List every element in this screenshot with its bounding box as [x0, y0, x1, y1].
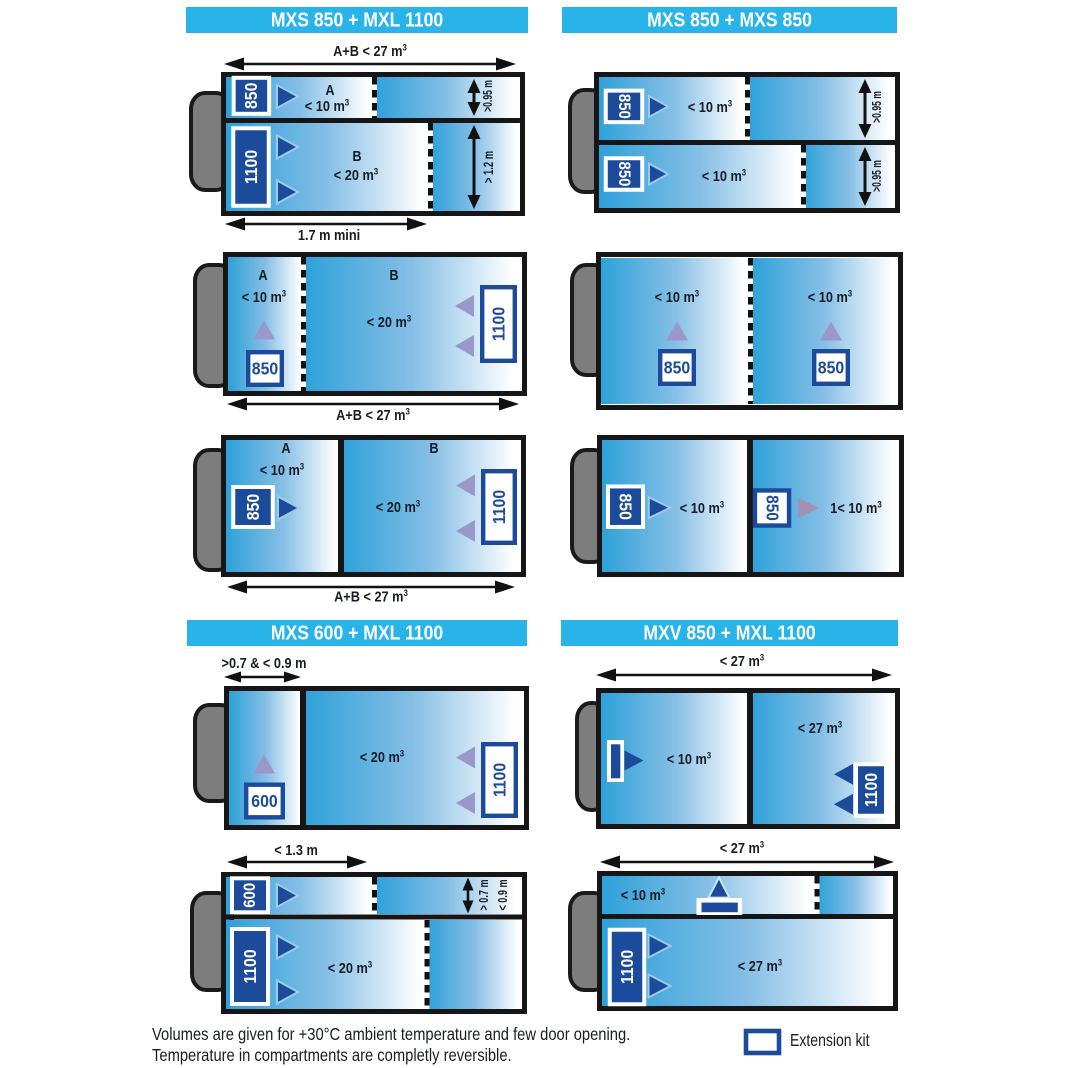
svg-text:A: A: [281, 439, 290, 456]
svg-text:< 27 m3: < 27 m3: [798, 719, 843, 737]
svg-text:1100: 1100: [617, 950, 637, 984]
svg-text:850: 850: [615, 162, 633, 187]
svg-text:850: 850: [762, 495, 781, 521]
svg-text:A: A: [258, 266, 267, 283]
svg-text:MXV 850 + MXL 1100: MXV 850 + MXL 1100: [643, 621, 815, 643]
svg-text:< 10 m3: < 10 m3: [655, 288, 700, 306]
svg-text:< 10 m3: < 10 m3: [260, 461, 305, 479]
svg-text:850: 850: [243, 494, 263, 520]
svg-text:< 10 m3: < 10 m3: [680, 499, 725, 517]
svg-text:1100: 1100: [488, 307, 508, 341]
svg-text:< 20 m3: < 20 m3: [360, 748, 405, 766]
svg-text:A+B < 27 m3: A+B < 27 m3: [336, 406, 410, 424]
svg-text:MXS 600 + MXL 1100: MXS 600 + MXL 1100: [271, 621, 443, 643]
svg-text:850: 850: [664, 357, 690, 377]
svg-text:850: 850: [818, 357, 844, 377]
svg-text:1100: 1100: [489, 763, 509, 797]
svg-text:> 1.2 m: > 1.2 m: [481, 151, 496, 183]
svg-text:< 20 m3: < 20 m3: [376, 498, 421, 516]
svg-text:Volumes are given for +30°C am: Volumes are given for +30°C ambient temp…: [152, 1025, 630, 1045]
svg-text:< 10 m3: < 10 m3: [667, 750, 712, 768]
svg-text:< 10 m3: < 10 m3: [808, 288, 853, 306]
svg-text:< 0.9 m: < 0.9 m: [497, 879, 511, 910]
svg-text:A+B < 27 m3: A+B < 27 m3: [333, 42, 407, 60]
svg-text:< 20 m3: < 20 m3: [367, 313, 412, 331]
svg-text:< 10 m3: < 10 m3: [242, 288, 287, 306]
svg-text:1100: 1100: [241, 150, 261, 184]
svg-text:A+B < 27 m3: A+B < 27 m3: [334, 587, 408, 605]
svg-text:A: A: [325, 81, 334, 98]
svg-text:>0.95 m: >0.95 m: [870, 160, 884, 192]
svg-text:>0.95 m: >0.95 m: [481, 80, 495, 112]
svg-text:Temperature in compartments ar: Temperature in compartments are completl…: [152, 1046, 512, 1066]
svg-text:1.7 m mini: 1.7 m mini: [298, 226, 360, 243]
svg-text:< 10 m3: < 10 m3: [305, 97, 350, 115]
svg-text:MXS 850 + MXL 1100: MXS 850 + MXL 1100: [271, 8, 443, 30]
svg-text:B: B: [429, 439, 438, 456]
svg-text:< 10 m3: < 10 m3: [688, 98, 733, 116]
svg-text:MXS 850 + MXS 850: MXS 850 + MXS 850: [647, 8, 812, 30]
svg-text:< 27 m3: < 27 m3: [720, 652, 765, 670]
svg-text:B: B: [352, 147, 361, 164]
svg-text:1100: 1100: [861, 773, 881, 807]
svg-text:1< 10 m3: 1< 10 m3: [830, 499, 882, 517]
svg-text:B: B: [389, 266, 398, 283]
svg-text:>0.95 m: >0.95 m: [870, 91, 884, 123]
svg-text:>0.7 & < 0.9 m: >0.7 & < 0.9 m: [222, 654, 307, 671]
svg-text:850: 850: [252, 358, 278, 378]
svg-text:1100: 1100: [489, 490, 509, 524]
svg-text:< 1.3 m: < 1.3 m: [274, 841, 318, 858]
svg-text:< 27 m3: < 27 m3: [720, 839, 765, 857]
svg-text:850: 850: [241, 83, 261, 109]
svg-text:< 27 m3: < 27 m3: [738, 957, 783, 975]
svg-text:850: 850: [615, 94, 633, 119]
svg-text:< 20 m3: < 20 m3: [328, 959, 373, 977]
svg-text:Extension kit: Extension kit: [790, 1030, 870, 1050]
svg-text:600: 600: [251, 791, 277, 811]
svg-text:600: 600: [241, 883, 259, 908]
svg-text:< 10 m3: < 10 m3: [621, 886, 666, 904]
svg-text:< 20 m3: < 20 m3: [334, 166, 379, 184]
svg-text:> 0.7 m: > 0.7 m: [478, 879, 492, 910]
svg-text:< 10 m3: < 10 m3: [702, 167, 747, 185]
svg-text:1100: 1100: [240, 949, 260, 983]
svg-text:850: 850: [615, 493, 635, 519]
